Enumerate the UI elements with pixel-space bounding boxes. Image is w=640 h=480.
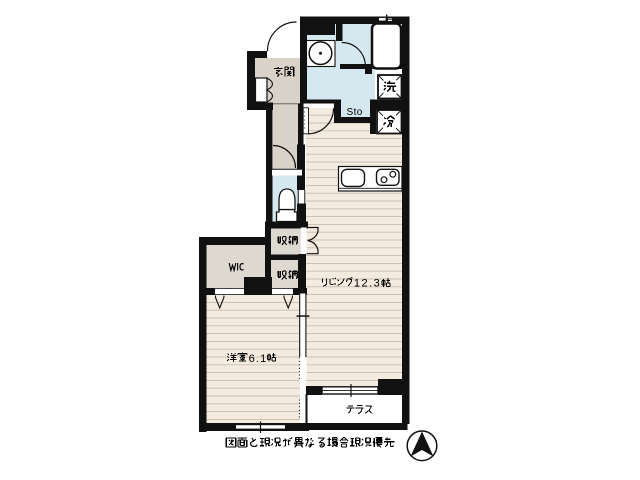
svg-text:Sto: Sto [347,107,363,118]
svg-text:12.3: 12.3 [354,278,381,290]
svg-text:6.1: 6.1 [249,353,268,365]
